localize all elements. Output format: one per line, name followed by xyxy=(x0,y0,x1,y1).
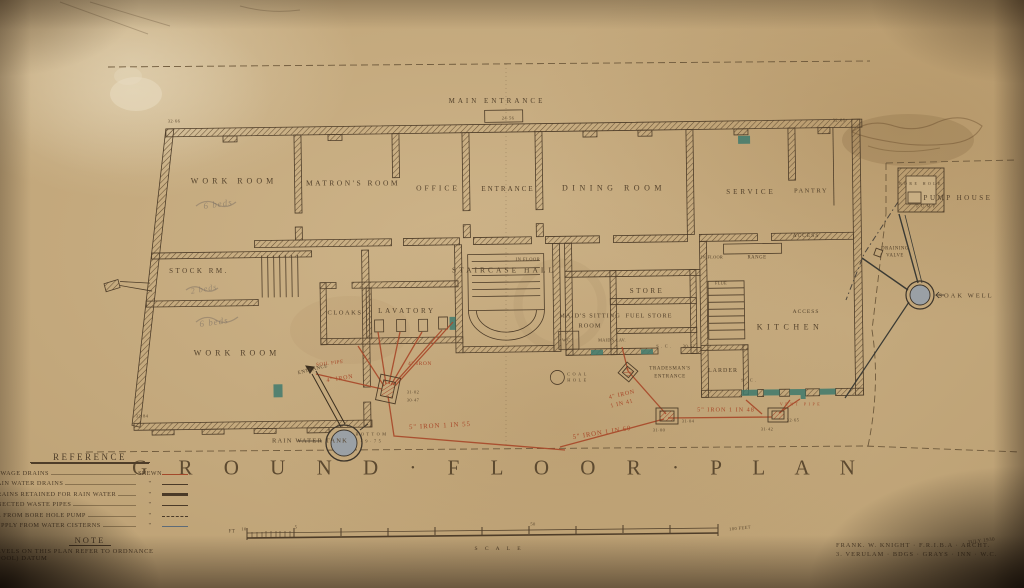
label-cloaks: CLOAKS xyxy=(327,310,362,317)
level-mh1-b: 30·47 xyxy=(407,398,420,403)
label-entrance: ENTRANCE xyxy=(481,185,534,193)
label-wc: W.C. xyxy=(562,338,572,343)
level-entrance-step: 24·56 xyxy=(502,116,515,121)
label-maids-lav: MAID'S LAV. xyxy=(598,338,626,343)
level-mh4-b: 31·42 xyxy=(761,427,774,432)
legend-label: NNECTED WASTE PIPES xyxy=(0,501,71,508)
label-tradesmans-1: TRADESMAN'S xyxy=(649,367,690,372)
level-ne: 32·68 xyxy=(833,118,846,123)
level-nw: 32·66 xyxy=(168,119,181,124)
label-tradesmans-2: ENTRANCE xyxy=(654,375,685,380)
photo-of-floor-plan: MAIN ENTRANCE WORK ROOM MATRON'S ROOM OF… xyxy=(0,0,1024,588)
label-soak-well: SOAK WELL xyxy=(938,293,993,300)
reference-legend: REFERENCE SEWAGE DRAINS SHEWN RAIN WATER… xyxy=(0,452,188,562)
level-mh1-a: 31·02 xyxy=(407,390,420,395)
label-office: OFFICE xyxy=(416,184,460,193)
paper-stains xyxy=(110,67,982,364)
legend-label: RAIN WATER DRAINS xyxy=(0,480,63,487)
label-coal-2: HOLE xyxy=(567,378,588,383)
legend-swatch-bore xyxy=(162,516,188,517)
legend-ditto: " xyxy=(138,492,162,498)
label-pantry: PANTRY xyxy=(794,188,828,195)
label-access-service: ACCESS xyxy=(793,233,820,239)
legend-ditto: " xyxy=(138,502,162,508)
legend-leader xyxy=(118,495,136,496)
walls xyxy=(128,119,866,435)
label-tank-bottom-level: 49·75 xyxy=(361,439,384,444)
label-access-kitchen: ACCESS xyxy=(793,309,820,315)
scale-ft: FT xyxy=(229,530,236,535)
label-bore-hole: BORE HOLE xyxy=(899,182,943,186)
label-rain-water-tank: RAIN WATER TANK xyxy=(272,438,348,445)
legend-row-waste: NNECTED WASTE PIPES " xyxy=(0,498,188,509)
scale-caption: S C A L E xyxy=(474,546,523,552)
label-draining-1: DRAINING xyxy=(881,247,909,252)
label-lavatory: LAVATORY xyxy=(378,307,436,315)
legend-leader xyxy=(73,505,136,506)
level-mh2: 30·52 xyxy=(683,344,696,349)
drain-label-5in-48: 5" IRON 1 IN 48 xyxy=(697,407,755,414)
label-coal-1: COAL xyxy=(567,372,589,377)
paper-fold-lines xyxy=(60,2,300,34)
legend-swatch-cistern xyxy=(162,526,188,527)
label-in-floor-kitchen: IN FLOOR xyxy=(701,255,723,260)
note-line-1: LEVELS ON THIS PLAN REFER TO ORDNANCE xyxy=(0,548,188,555)
label-larder: LARDER xyxy=(708,368,738,374)
label-staircase-hall: STAIRCASE HALL xyxy=(452,266,556,275)
label-draining-2: VALVE xyxy=(886,254,904,259)
legend-swatch-waste xyxy=(162,505,188,506)
legend-leader xyxy=(103,526,136,527)
label-work-room-upper: WORK ROOM xyxy=(191,177,277,186)
label-range: RANGE xyxy=(747,256,766,261)
label-stock-rm: STOCK RM. xyxy=(169,267,229,275)
label-store: STORE xyxy=(630,287,665,295)
label-service: SERVICE xyxy=(726,188,776,196)
legend-shewn: SHEWN xyxy=(138,471,162,477)
label-main-entrance: MAIN ENTRANCE xyxy=(449,97,546,105)
signature-line-2: 3. VERULAM · BDGS · GRAYS · INN · W.C. xyxy=(836,550,997,559)
label-maids-sitting-1: MAID'S SITTING xyxy=(559,313,621,320)
legend-ditto: " xyxy=(138,513,162,519)
level-mh3-b: 31·00 xyxy=(653,428,666,433)
level-sw: 32·84 xyxy=(136,414,149,419)
label-tank-bottom: BOTTOM xyxy=(355,432,388,437)
legend-swatch-retained xyxy=(162,493,188,496)
drain-label-vent-pipe: VENT PIPE xyxy=(780,402,822,407)
level-mh3-a: 31·04 xyxy=(682,419,695,424)
legend-leader xyxy=(88,516,136,517)
legend-leader xyxy=(51,474,136,475)
drain-label-4in-b: 4" IRON xyxy=(408,361,432,367)
legend-label: DRAINS RETAINED FOR RAIN WATER xyxy=(0,491,116,498)
label-pump: PUMP xyxy=(916,204,937,209)
label-work-room-lower: WORK ROOM xyxy=(194,349,280,358)
label-kitchen: KITCHEN xyxy=(757,323,824,332)
scale-bar xyxy=(247,524,718,540)
legend-swatch-rain xyxy=(162,484,188,485)
legend-row-cisterns: SUPPLY FROM WATER CISTERNS " xyxy=(0,519,188,530)
legend-leader xyxy=(65,484,136,485)
label-maids-sitting-2: ROOM xyxy=(579,323,602,330)
label-pump-house: PUMP HOUSE xyxy=(924,194,993,202)
legend-label: CE FROM BORE HOLE PUMP xyxy=(0,512,86,519)
legend-label: SUPPLY FROM WATER CISTERNS xyxy=(0,522,101,529)
legend-swatch-sewage xyxy=(162,474,188,475)
legend-row-sewage: SEWAGE DRAINS SHEWN xyxy=(0,466,188,477)
legend-row-retained: DRAINS RETAINED FOR RAIN WATER " xyxy=(0,487,188,498)
note-line-2: RPOOL) DATUM xyxy=(0,555,188,562)
label-matrons-room: MATRON'S ROOM xyxy=(306,179,400,188)
legend-ditto: " xyxy=(138,523,162,529)
drawing-title: G R O U N D · F L O O R · P L A N xyxy=(132,456,868,481)
legend-label: SEWAGE DRAINS xyxy=(0,470,49,477)
reference-title: REFERENCE xyxy=(30,452,150,463)
label-sc-1: S.C. xyxy=(656,344,673,349)
label-in-floor-hall: IN FLOOR xyxy=(516,257,541,262)
scale-5: 5 xyxy=(295,525,298,530)
legend-row-bore-hole: CE FROM BORE HOLE PUMP " xyxy=(0,508,188,519)
label-flue: FLUE xyxy=(715,281,727,286)
scale-10: 10 xyxy=(241,527,246,532)
level-mh4-a: 32·65 xyxy=(787,418,800,423)
label-fuel-store: FUEL STORE xyxy=(626,313,673,320)
legend-row-rain-water: RAIN WATER DRAINS " xyxy=(0,477,188,488)
label-sc-2: S.C. xyxy=(741,378,758,383)
scale-50: 50 xyxy=(530,522,535,527)
note-title: NOTE xyxy=(69,535,111,546)
legend-ditto: " xyxy=(138,481,162,487)
label-dining-room: DINING ROOM xyxy=(562,184,666,193)
